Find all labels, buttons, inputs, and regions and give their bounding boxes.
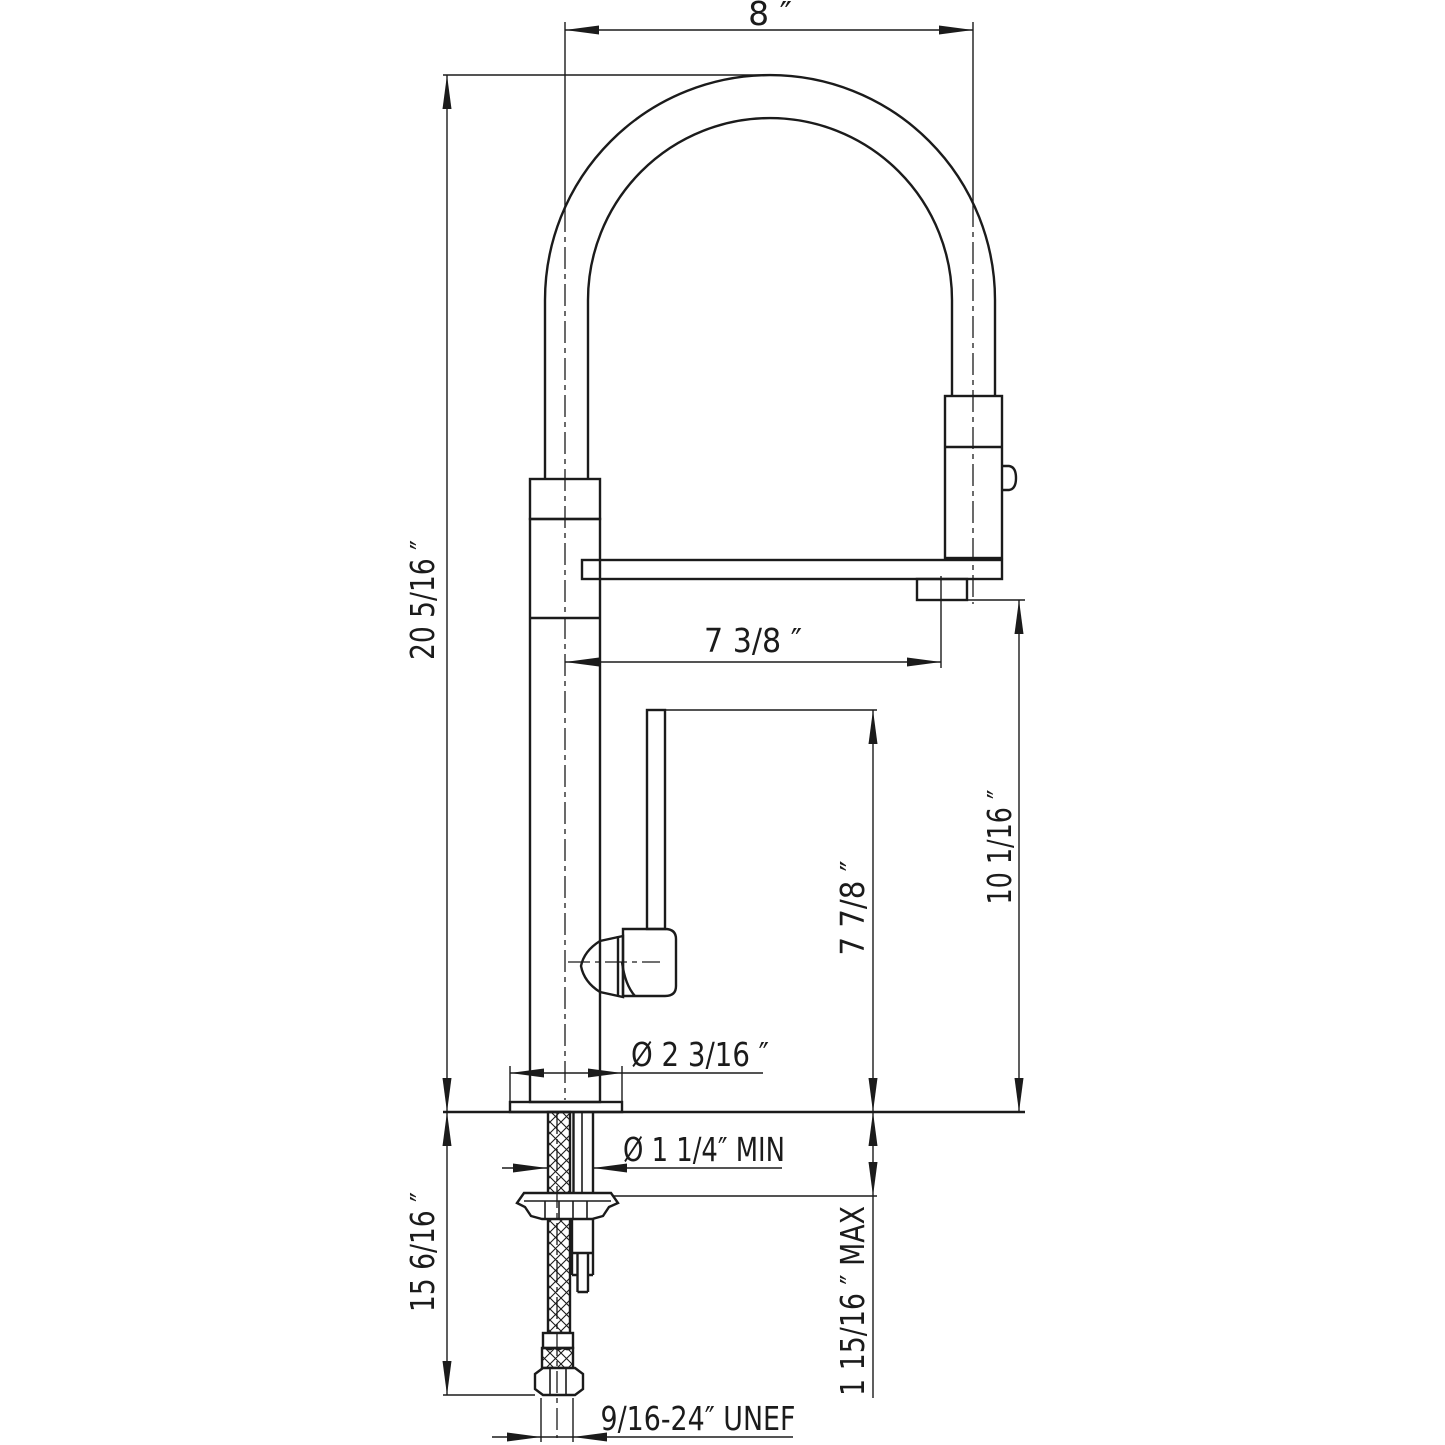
arrow [869,1078,878,1112]
spray-nozzle [917,579,967,600]
spray-button [1002,466,1016,490]
arrow [443,1112,452,1146]
arrow [869,1112,878,1146]
dimension-lines [447,30,1019,1437]
handle-knob [581,936,623,997]
arrow [513,1164,547,1173]
arrow [1015,600,1024,634]
arrow [443,75,452,109]
dim-label-max-counter: 1 15/16 ″ MAX [833,1206,872,1396]
mounting-nut [517,1193,618,1219]
faucet-technical-drawing: 8 ″ 20 5/16 ″ 15 6/16 ″ 7 3/8 ″ 7 7/8 ″ … [0,0,1445,1445]
faucet-body [510,75,1016,1395]
dim-label-base-diameter: Ø 2 3/16 ″ [631,1035,769,1074]
technical-drawing-canvas: 8 ″ 20 5/16 ″ 15 6/16 ″ 7 3/8 ″ 7 7/8 ″ … [0,0,1445,1445]
arrow [565,658,599,667]
arrow [507,1433,541,1442]
dim-label-overall-height: 20 5/16 ″ [403,540,442,660]
dim-label-spout-width: 8 ″ [748,0,792,33]
spout-arch-outer [545,75,995,300]
dim-label-spout-reach: 7 3/8 ″ [704,621,802,660]
spout-arm [582,560,1002,579]
dim-label-thread: 9/16-24″ UNEF [601,1399,796,1438]
spout-arch-inner [588,118,952,300]
arrow [869,710,878,744]
arrow [443,1361,452,1395]
arrow [588,1069,622,1078]
supply-pipe-lower [572,1219,593,1292]
arrow [510,1069,544,1078]
dim-label-below-counter: 15 6/16 ″ [403,1192,442,1312]
arrow [565,26,599,35]
dim-label-min-hole: Ø 1 1/4″ MIN [623,1130,785,1169]
hose-crimp-collar [543,1333,573,1348]
base-flange [510,1102,622,1112]
arrow [593,1164,627,1173]
arrow [907,658,941,667]
dim-label-outlet-height: 10 1/16 ″ [980,790,1019,905]
centerlines [557,205,973,1438]
arrow [939,26,973,35]
dim-label-handle-height: 7 7/8 ″ [833,861,872,956]
arrow [1015,1078,1024,1112]
braided-hose [548,1112,570,1333]
arrow [869,1162,878,1196]
arrow [443,1078,452,1112]
handle-lever-rod [647,710,665,929]
hose-hex-nut [535,1368,583,1395]
dimension-labels: 8 ″ 20 5/16 ″ 15 6/16 ″ 7 3/8 ″ 7 7/8 ″ … [403,0,1019,1438]
